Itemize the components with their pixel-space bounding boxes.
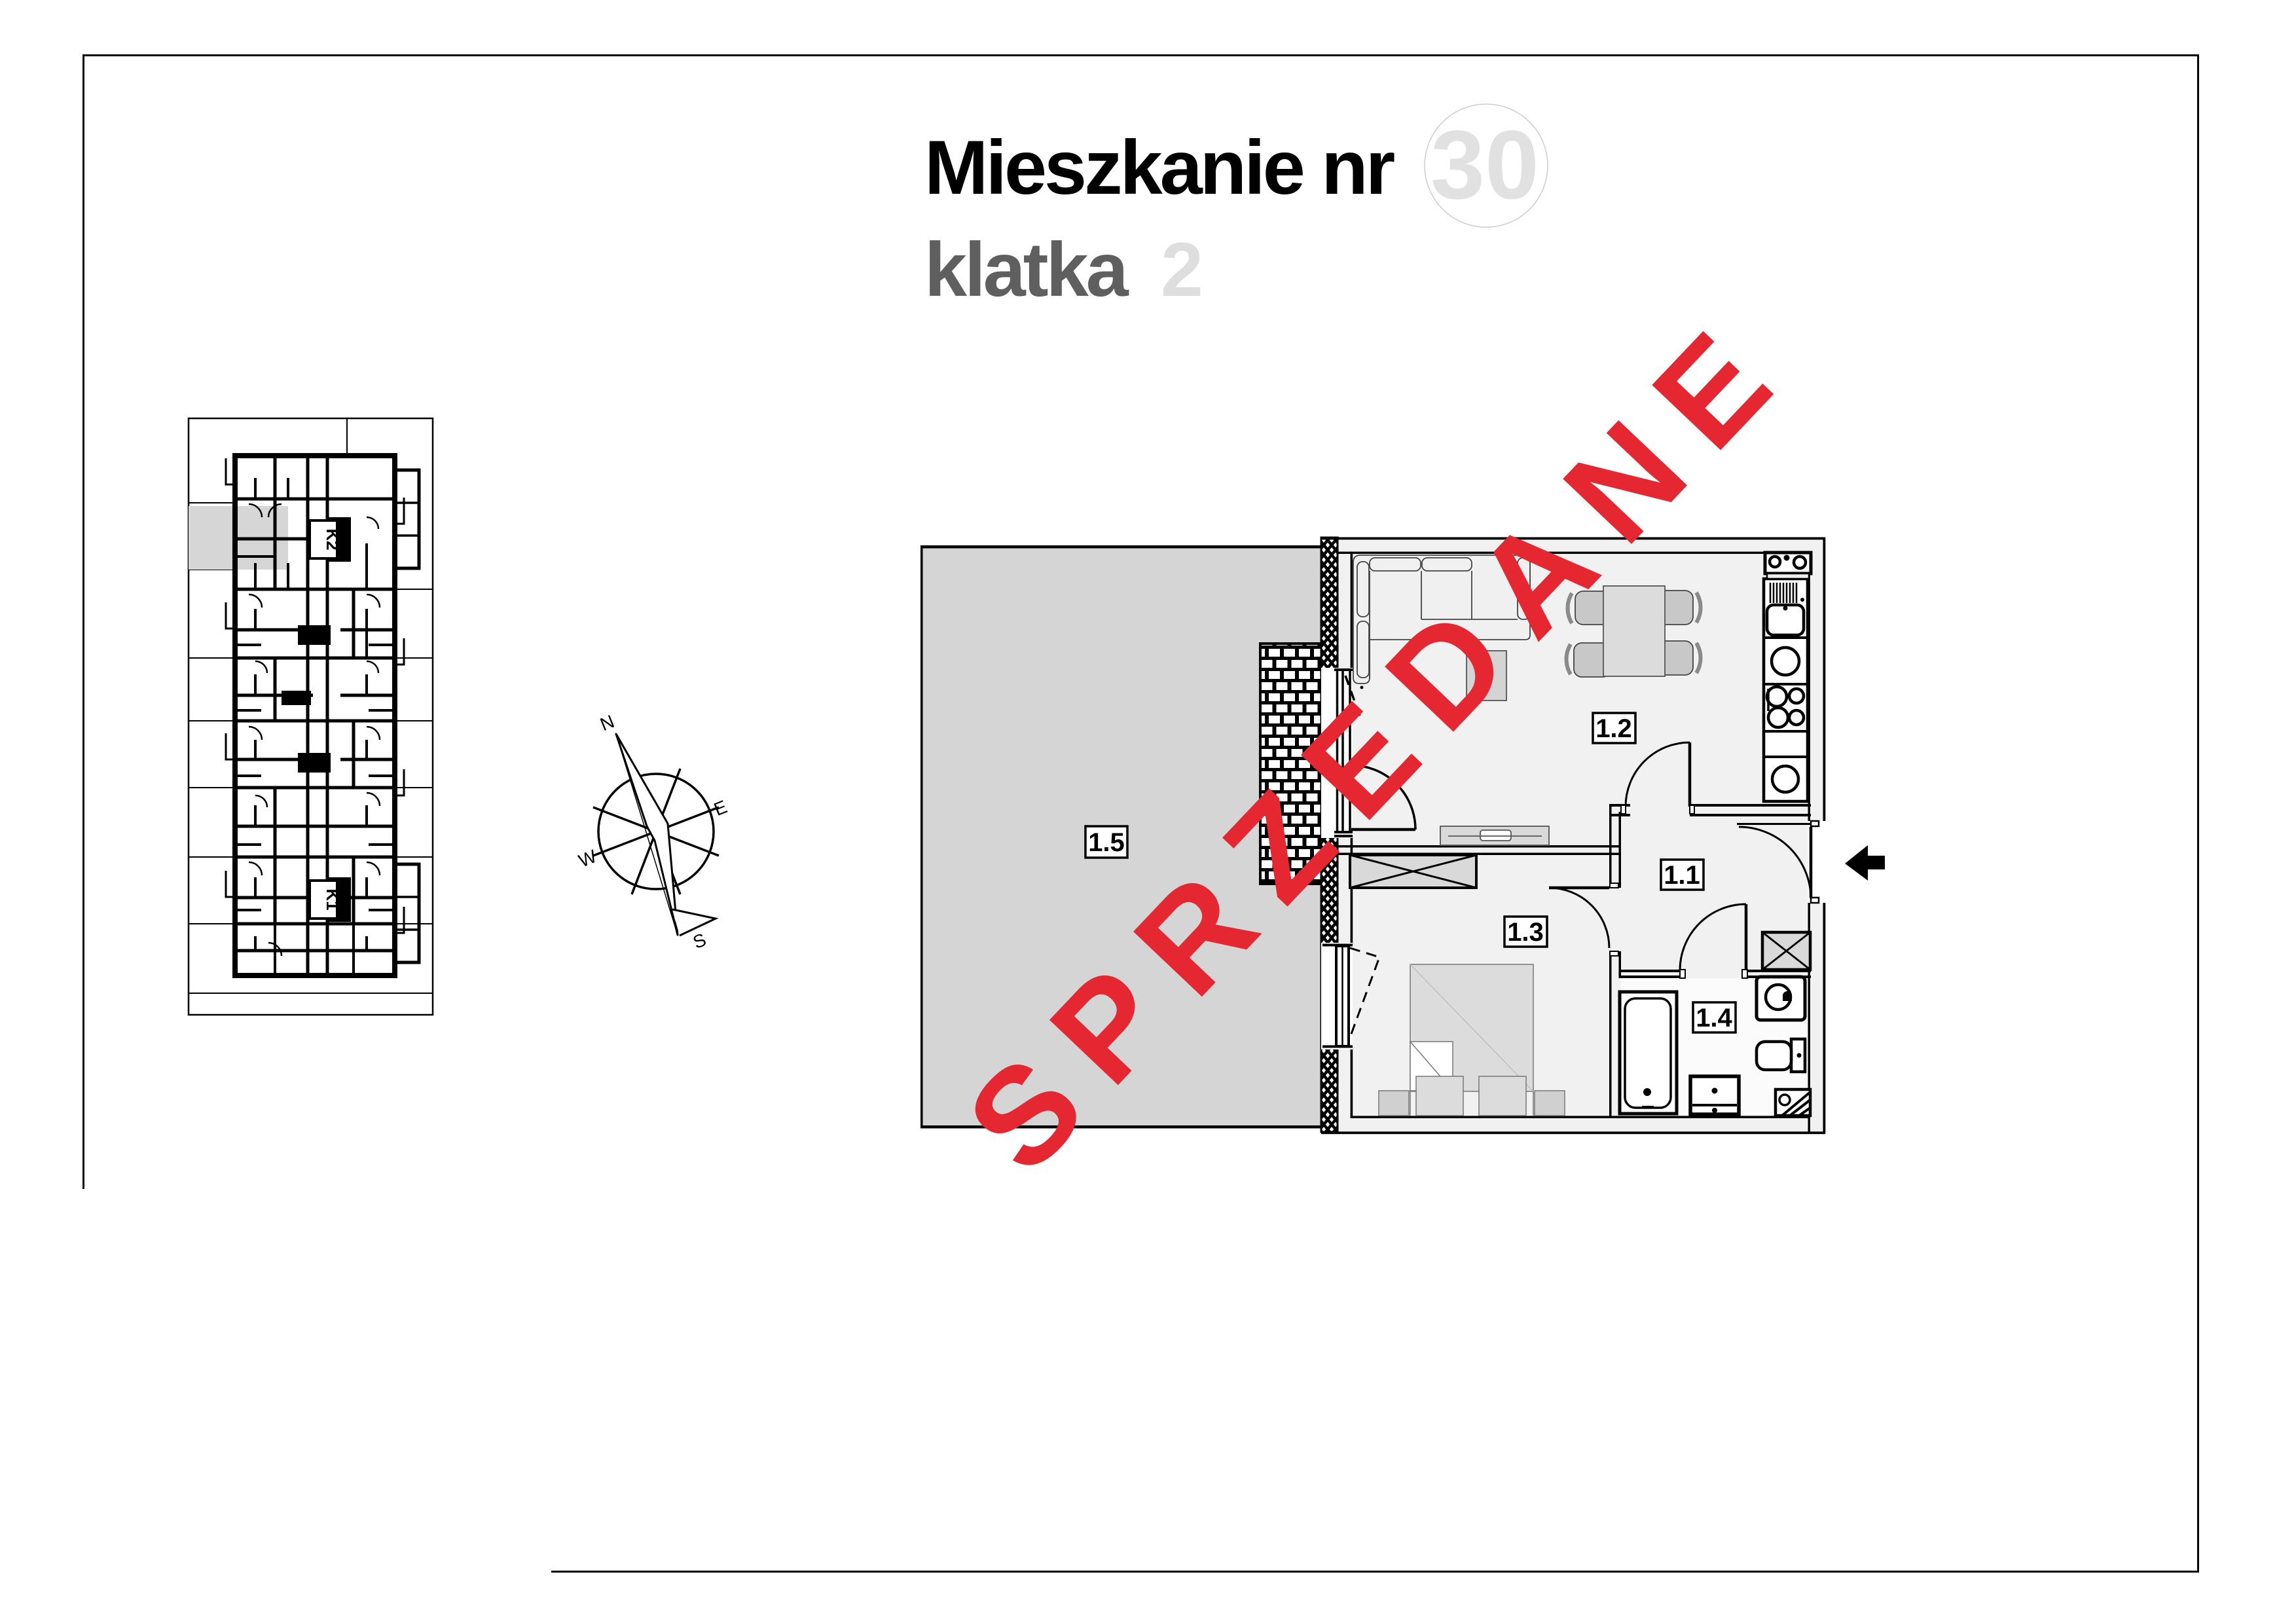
svg-text:1.3: 1.3: [1507, 918, 1544, 947]
svg-text:30: 30: [1430, 110, 1539, 219]
svg-text:1.5: 1.5: [1088, 828, 1125, 857]
svg-text:Mieszkanie nr: Mieszkanie nr: [924, 124, 1394, 210]
svg-text:klatka: klatka: [924, 227, 1129, 312]
svg-text:1.1: 1.1: [1664, 861, 1700, 890]
svg-text:1.4: 1.4: [1696, 1004, 1732, 1032]
svg-text:1.2: 1.2: [1595, 714, 1632, 743]
svg-text:K1: K1: [323, 888, 342, 910]
svg-text:K2: K2: [323, 528, 342, 550]
svg-text:2: 2: [1161, 227, 1203, 312]
